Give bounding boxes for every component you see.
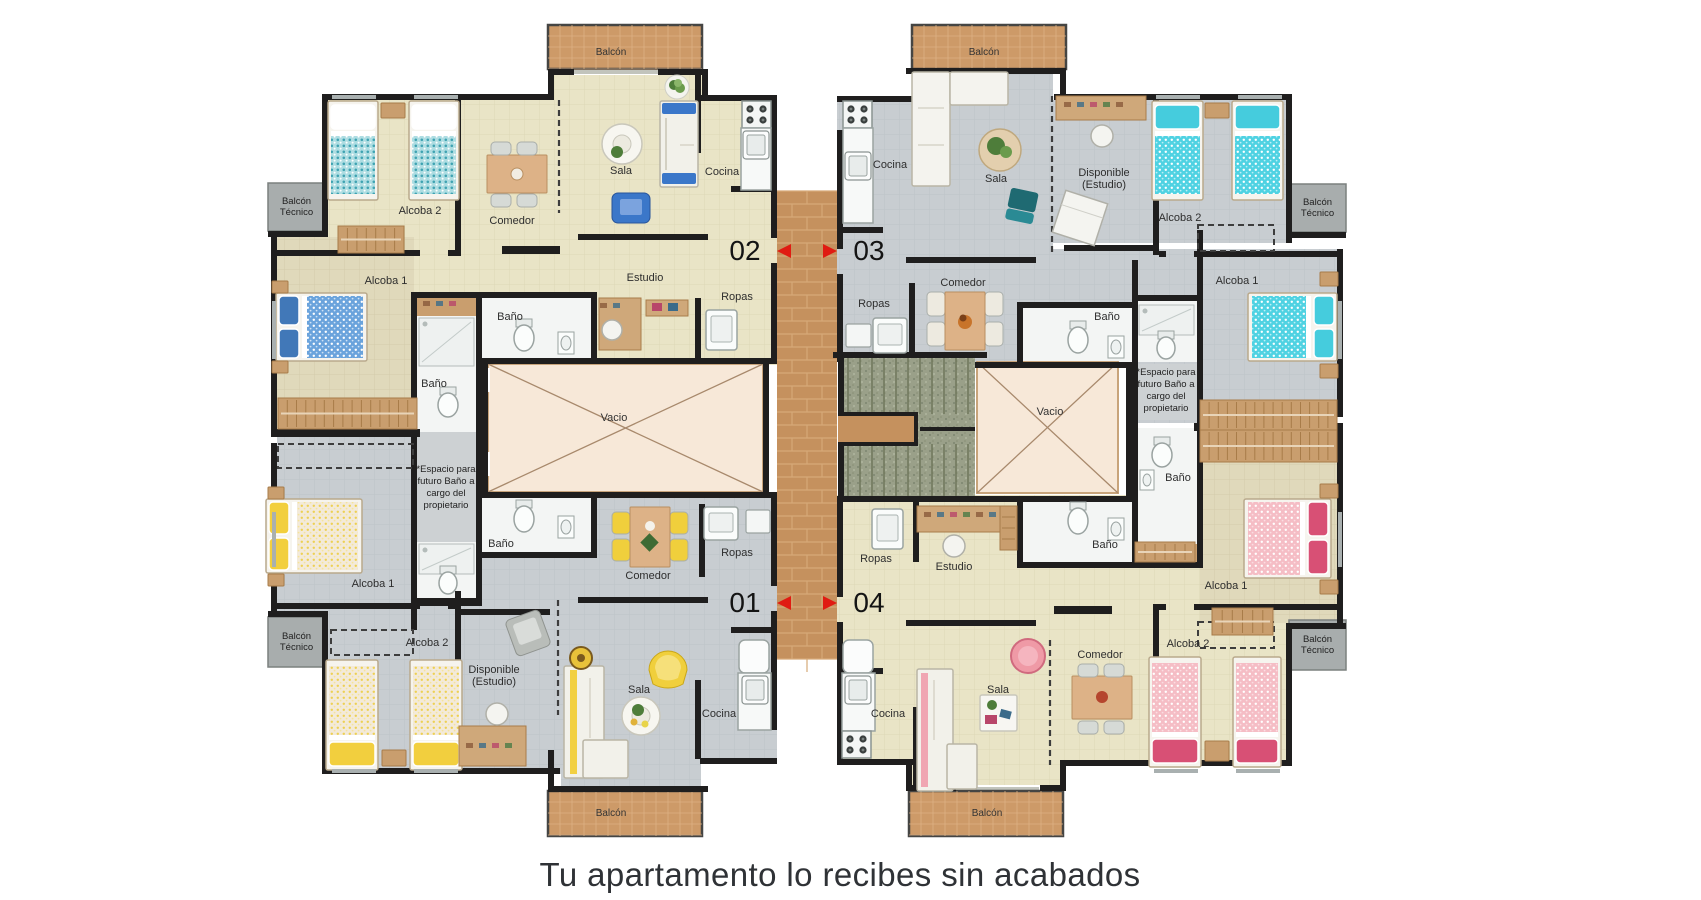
svg-text:Sala: Sala: [987, 684, 1010, 696]
svg-text:*Espacio para: *Espacio para: [1136, 367, 1196, 378]
svg-text:Balcón: Balcón: [282, 631, 311, 642]
svg-text:01: 01: [729, 587, 760, 618]
svg-text:*Espacio para: *Espacio para: [416, 464, 476, 475]
svg-text:Alcoba 2: Alcoba 2: [1159, 212, 1202, 224]
svg-text:Balcón: Balcón: [969, 47, 1000, 58]
svg-text:Alcoba 1: Alcoba 1: [1216, 275, 1259, 287]
svg-text:Técnico: Técnico: [1301, 645, 1334, 656]
svg-text:Baño: Baño: [1094, 311, 1120, 323]
svg-text:Alcoba 2: Alcoba 2: [1167, 638, 1210, 650]
svg-text:Comedor: Comedor: [489, 215, 535, 227]
svg-text:Técnico: Técnico: [280, 642, 313, 653]
svg-text:Comedor: Comedor: [940, 277, 986, 289]
svg-text:(Estudio): (Estudio): [472, 676, 516, 688]
svg-text:propietario: propietario: [1144, 403, 1189, 414]
svg-text:Alcoba 1: Alcoba 1: [1205, 580, 1248, 592]
svg-text:Alcoba 2: Alcoba 2: [399, 205, 442, 217]
svg-text:Baño: Baño: [488, 538, 514, 550]
svg-text:futuro Baño a: futuro Baño a: [1137, 379, 1195, 390]
svg-text:Disponible: Disponible: [468, 664, 519, 676]
svg-text:Alcoba 1: Alcoba 1: [365, 275, 408, 287]
svg-text:Comedor: Comedor: [625, 570, 671, 582]
svg-text:Sala: Sala: [610, 165, 633, 177]
svg-text:Baño: Baño: [1092, 539, 1118, 551]
svg-text:cargo del: cargo del: [426, 488, 465, 499]
svg-text:Sala: Sala: [985, 173, 1008, 185]
svg-text:Estudio: Estudio: [627, 272, 664, 284]
svg-text:Disponible: Disponible: [1078, 167, 1129, 179]
svg-text:Balcón: Balcón: [972, 808, 1003, 819]
svg-text:Balcón: Balcón: [596, 808, 627, 819]
svg-text:Balcón: Balcón: [282, 196, 311, 207]
svg-text:Alcoba 1: Alcoba 1: [352, 578, 395, 590]
svg-text:Cocina: Cocina: [705, 166, 740, 178]
svg-text:Balcón: Balcón: [1303, 634, 1332, 645]
svg-text:Cocina: Cocina: [871, 708, 906, 720]
svg-text:Cocina: Cocina: [873, 159, 908, 171]
svg-text:02: 02: [729, 235, 760, 266]
svg-text:Baño: Baño: [1165, 472, 1191, 484]
svg-text:Comedor: Comedor: [1077, 649, 1123, 661]
svg-text:propietario: propietario: [424, 500, 469, 511]
svg-text:03: 03: [853, 235, 884, 266]
svg-text:Ropas: Ropas: [721, 291, 753, 303]
svg-text:Ropas: Ropas: [858, 298, 890, 310]
svg-text:(Estudio): (Estudio): [1082, 179, 1126, 191]
svg-text:Alcoba 2: Alcoba 2: [406, 637, 449, 649]
svg-text:Vacio: Vacio: [1037, 406, 1064, 418]
svg-text:Tu apartamento lo recibes sin: Tu apartamento lo recibes sin acabados: [540, 856, 1141, 893]
svg-text:futuro Baño a: futuro Baño a: [417, 476, 475, 487]
svg-text:04: 04: [853, 587, 884, 618]
svg-text:Balcón: Balcón: [596, 47, 627, 58]
svg-text:Sala: Sala: [628, 684, 651, 696]
svg-text:Ropas: Ropas: [860, 553, 892, 565]
svg-text:Estudio: Estudio: [936, 561, 973, 573]
svg-text:Baño: Baño: [497, 311, 523, 323]
svg-text:cargo del: cargo del: [1146, 391, 1185, 402]
svg-text:Ropas: Ropas: [721, 547, 753, 559]
svg-text:Técnico: Técnico: [1301, 208, 1334, 219]
svg-text:Cocina: Cocina: [702, 708, 737, 720]
svg-text:Vacio: Vacio: [601, 412, 628, 424]
svg-text:Balcón: Balcón: [1303, 197, 1332, 208]
svg-text:Técnico: Técnico: [280, 207, 313, 218]
svg-text:Baño: Baño: [421, 378, 447, 390]
